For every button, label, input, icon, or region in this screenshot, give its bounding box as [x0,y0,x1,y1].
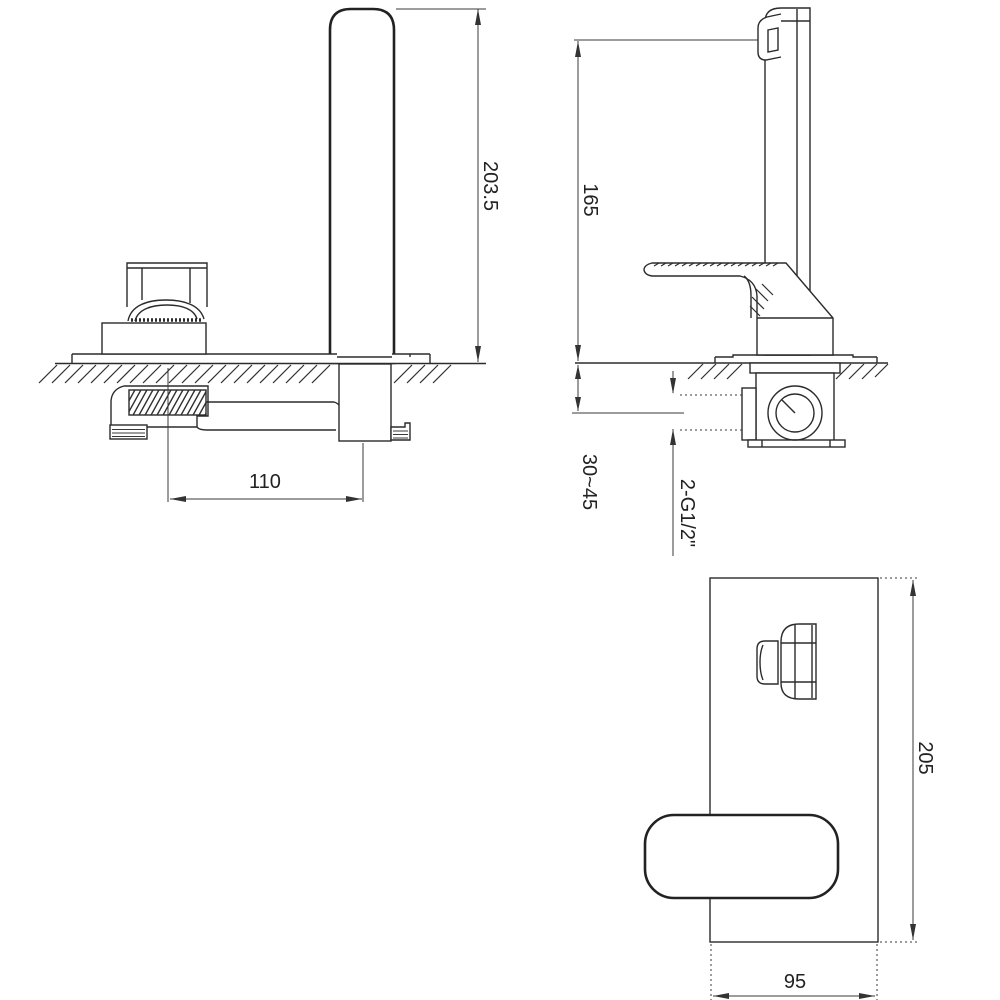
technical-drawing-page: 203.5 110 [0,0,1000,1000]
dim-label-outlet-height: 165 [579,183,601,216]
front-view [39,9,486,502]
valve-flange-side [750,363,840,373]
dimension-plate-width: 95 [711,944,877,1000]
dim-label-spout-height: 203.5 [479,161,501,211]
dim-label-spacing: 110 [249,471,281,493]
handle-base-front [102,323,206,354]
handle-knob-plan [781,624,816,699]
port-centerlines [680,395,742,430]
plan-view [645,578,878,942]
dim-label-plate-width: 95 [784,971,806,993]
valve-bracket-side [742,388,756,440]
spout-outlet-inner [768,28,778,52]
wall-plate-fill [72,354,430,364]
side-view [575,8,888,447]
wall-plate-side [715,355,877,363]
faucet-installation-drawing: 203.5 110 [0,0,1000,1000]
dimension-wall-depth: 30~45 [572,365,684,510]
dim-label-thread-spec: 2-G1/2" [676,479,698,547]
dimension-plate-height: 205 [880,578,936,942]
spout-plan [645,815,838,898]
spout-front [330,9,394,363]
spout-body-below-wall [339,364,391,441]
dimension-thread-spec: 2-G1/2" [670,371,698,556]
dimension-outlet-height: 165 [574,40,758,361]
connecting-pipe [197,402,341,430]
dimension-spout-height: 203.5 [396,9,501,362]
dimension-spacing-110: 110 [170,471,362,502]
dim-label-plate-height: 205 [914,741,936,774]
dim-label-wall-depth: 30~45 [578,454,600,510]
